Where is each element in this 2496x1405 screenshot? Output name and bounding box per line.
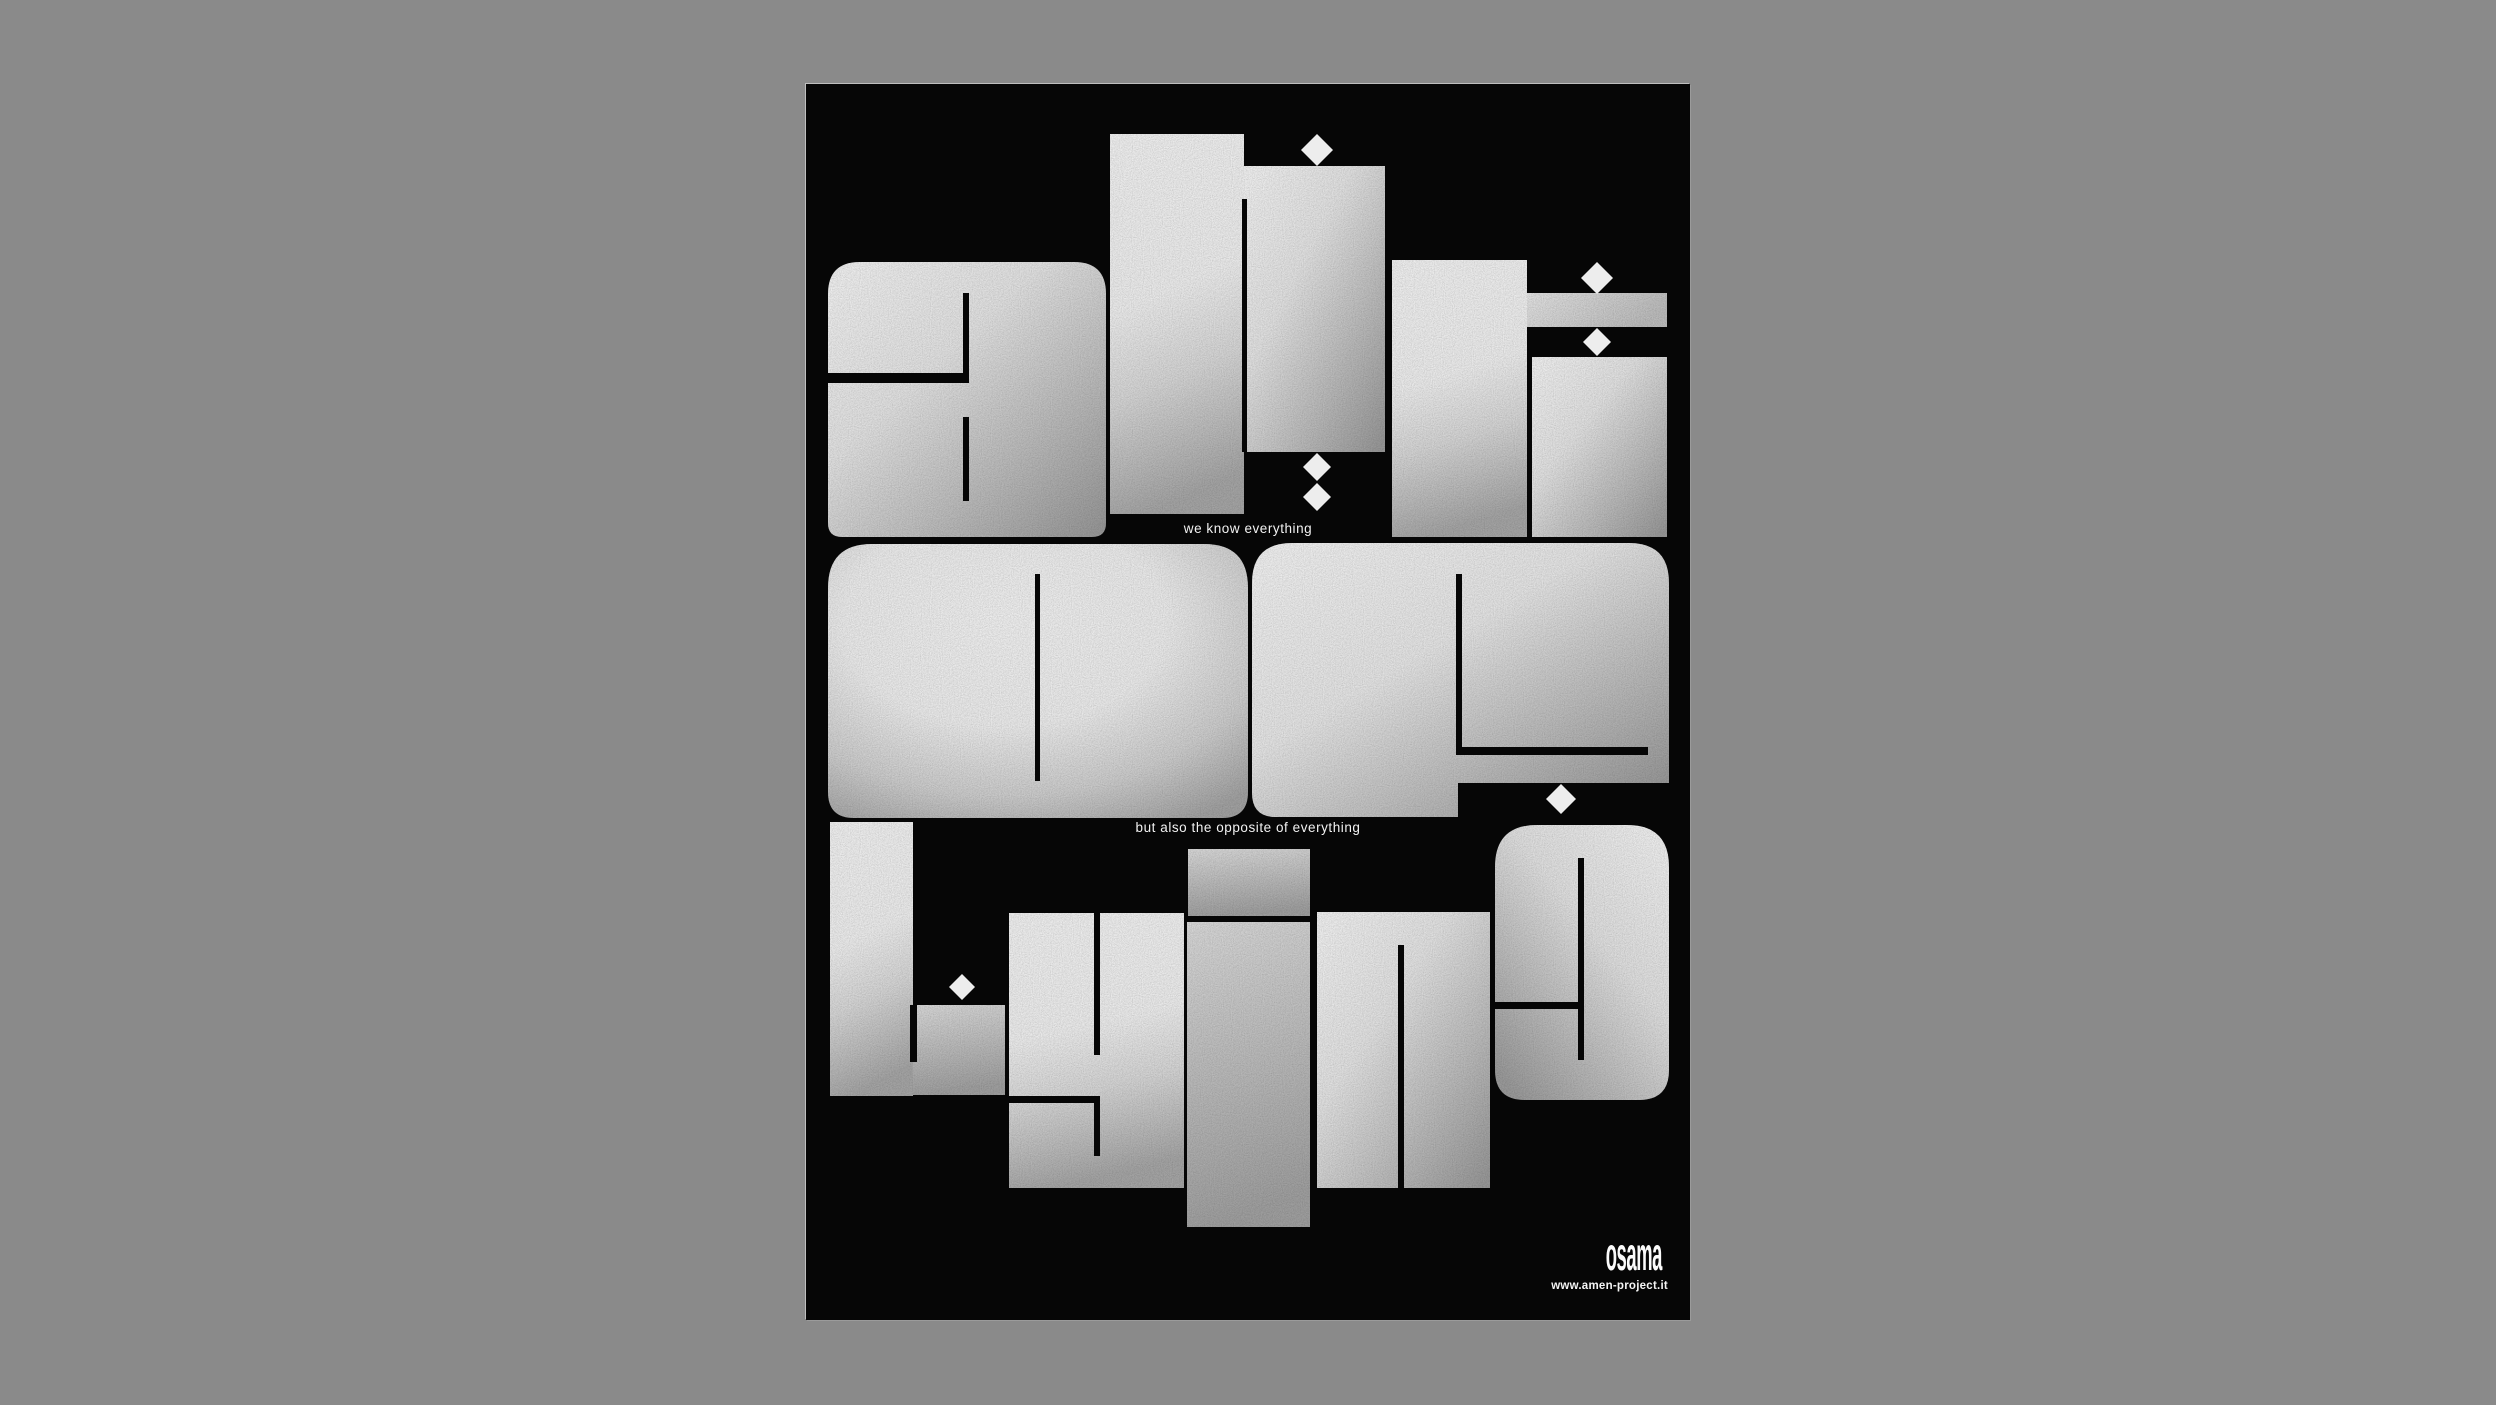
- poster: we know everything but also the opposite…: [806, 84, 1690, 1320]
- poster-artwork: we know everything but also the opposite…: [806, 84, 1690, 1320]
- studio-logo-text: osama: [1606, 1229, 1663, 1280]
- desktop-background: we know everything but also the opposite…: [0, 0, 2496, 1405]
- studio-logo: osama: [1606, 1229, 1663, 1280]
- caption-row1: we know everything: [1183, 521, 1312, 536]
- website-url: www.amen-project.it: [1550, 1280, 1668, 1292]
- caption-row2: but also the opposite of everything: [1136, 820, 1361, 835]
